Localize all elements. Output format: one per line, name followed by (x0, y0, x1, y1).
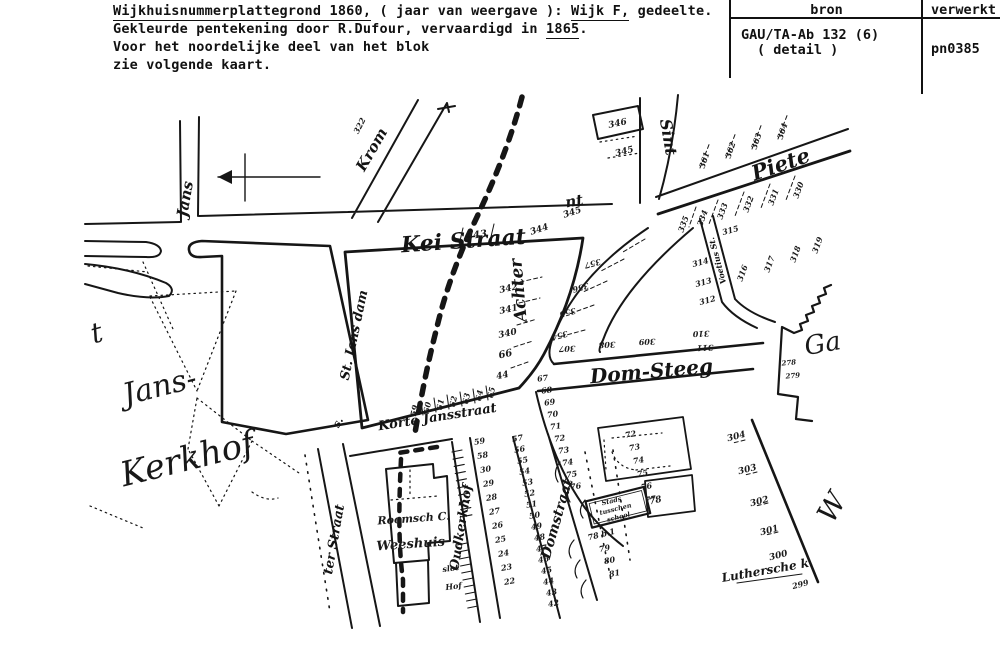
parcel-number: 308 (598, 340, 615, 351)
parcel-number: 340 (497, 327, 518, 341)
parcel-number: 304 (726, 430, 747, 445)
parcel-number: 50 (528, 509, 541, 521)
parcel-number: 72 (624, 428, 637, 440)
parcel-number: 65 (485, 385, 497, 398)
parcel-number: 344 (529, 222, 550, 237)
parcel-number: 302 (749, 495, 770, 510)
script-partial-right: Ga (802, 326, 843, 362)
building-label-78b1: 78 b.1 (587, 526, 616, 542)
map-street-lines (85, 95, 848, 628)
parcel-number: 73 (557, 444, 570, 456)
parcel-number: 26 (490, 519, 504, 531)
map-text-layer: tJans-KerkhofGaWJansKromKei StraatSt. Ja… (87, 115, 855, 608)
parcel-number: 22 (502, 575, 516, 587)
city-map-drawing: tJans-KerkhofGaWJansKromKei StraatSt. Ja… (0, 0, 1000, 646)
parcel-number: 316 (735, 263, 750, 283)
parcel-number: 63 (460, 391, 472, 404)
parcel-number: 59 (473, 435, 486, 447)
parcel-number: 301 (759, 524, 780, 539)
parcel-number: 364 (775, 121, 790, 140)
parcel-number: 56 (513, 443, 526, 455)
parcel-number: 345 (614, 145, 635, 159)
parcel-number: 44 (542, 575, 555, 587)
street-label-fragment: s. (330, 415, 346, 430)
building-label-slot: slot (442, 562, 460, 574)
parcel-number: 355 (558, 306, 577, 320)
script-janskerkhof-kerkhof: Kerkhof (115, 422, 263, 495)
parcel-number: 57 (511, 432, 524, 444)
parcel-number: 58 (476, 449, 489, 461)
parcel-number: 53 (521, 476, 534, 488)
map-district-boundary-dashed-2 (398, 447, 437, 612)
parcel-number: 354 (550, 329, 569, 343)
parcel-number: 66 (498, 348, 514, 362)
building-label-weeshuis: Weeshuis (376, 535, 446, 555)
north-arrow-lines (218, 154, 320, 201)
north-arrow-head (218, 170, 232, 184)
parcel-number: 315 (721, 223, 740, 237)
map-janskerkhof-block-outline (189, 241, 368, 434)
parcel-number: 72 (553, 432, 566, 444)
script-janskerkhof-partial: t (87, 315, 107, 350)
parcel-number: 313 (694, 275, 713, 289)
parcel-number: 54 (518, 465, 531, 477)
parcel-number: 23 (499, 561, 513, 573)
parcel-number: 363 (749, 131, 764, 150)
parcel-number: 42 (547, 597, 560, 609)
parcel-number: 46 (537, 553, 550, 565)
parcel-number: 49 (530, 520, 543, 532)
parcel-number: 314 (691, 255, 710, 269)
street-label-jans: Jans (173, 179, 198, 221)
parcel-number: 303 (737, 463, 758, 478)
scanned-archive-sheet: Wijkhuisnummerplattegrond 1860, ( jaar v… (0, 0, 1000, 646)
parcel-number: 309 (638, 337, 655, 348)
parcel-number: 68 (540, 384, 553, 396)
parcel-number: 75 (636, 467, 649, 479)
parcel-number: 346 (607, 117, 628, 131)
parcel-number: 30 (479, 463, 492, 475)
parcel-number: 29 (481, 477, 495, 489)
parcel-number: 81 (608, 567, 621, 579)
parcel-number: 310 (692, 329, 709, 340)
script-janskerkhof-jans: Jans- (113, 361, 200, 414)
parcel-number: 48 (533, 531, 546, 543)
building-label-hof: Hof (444, 580, 464, 593)
parcel-number: 76 (640, 480, 653, 492)
parcel-number: 51 (525, 498, 538, 510)
parcel-number: 312 (698, 293, 717, 307)
parcel-number: 44 (495, 370, 509, 382)
parcel-number: 55 (516, 454, 529, 466)
parcel-number: 71 (549, 420, 561, 431)
script-partial-right-lower: W (810, 485, 854, 528)
parcel-number: 311 (697, 343, 714, 354)
parcel-number: 70 (546, 408, 559, 420)
parcel-number: 345 (562, 205, 583, 220)
parcel-number: 25 (493, 533, 507, 545)
street-label-sint-north: Sint (656, 117, 681, 157)
parcel-number: 362 (723, 140, 738, 159)
parcel-number: 299 (790, 577, 810, 591)
parcel-number: 27 (487, 505, 501, 517)
parcel-number: 322 (351, 115, 368, 135)
building-label-roomsch-c: Roomsch C. (376, 509, 450, 527)
parcel-number: 52 (523, 487, 536, 499)
parcel-number: 64 (473, 388, 485, 401)
parcel-number: 24 (496, 547, 510, 559)
parcel-number: 75 (565, 468, 578, 480)
parcel-number: 47 (535, 542, 548, 554)
parcel-number: 332 (741, 194, 756, 214)
parcel-number: 80 (603, 554, 616, 566)
parcel-number: 79 (598, 542, 611, 554)
parcel-number: 307 (558, 344, 575, 355)
street-label-ter-straat: ter Straat (321, 503, 348, 575)
parcel-number: 69 (543, 396, 556, 408)
parcel-number: 319 (810, 235, 825, 255)
parcel-number: 76 (569, 480, 582, 492)
parcel-number: 74 (561, 456, 574, 468)
parcel-number: 78 (648, 495, 663, 508)
parcel-number: 74 (632, 454, 645, 466)
parcel-number: 67 (536, 372, 549, 384)
parcel-number: 43 (545, 586, 558, 598)
parcel-number: 279 (784, 370, 800, 380)
parcel-number: 318 (788, 244, 803, 264)
parcel-number: 45 (540, 564, 553, 576)
parcel-number: 334 (695, 208, 710, 228)
parcel-number: 317 (762, 254, 777, 274)
street-label-oudkerkhof: Oudkerkhof (447, 481, 476, 571)
parcel-number: 278 (780, 357, 796, 367)
parcel-number: 361 (697, 151, 712, 170)
parcel-number: 28 (484, 491, 498, 503)
street-label-kei-straat: Kei Straat (399, 224, 526, 259)
parcel-number: 73 (628, 441, 641, 453)
